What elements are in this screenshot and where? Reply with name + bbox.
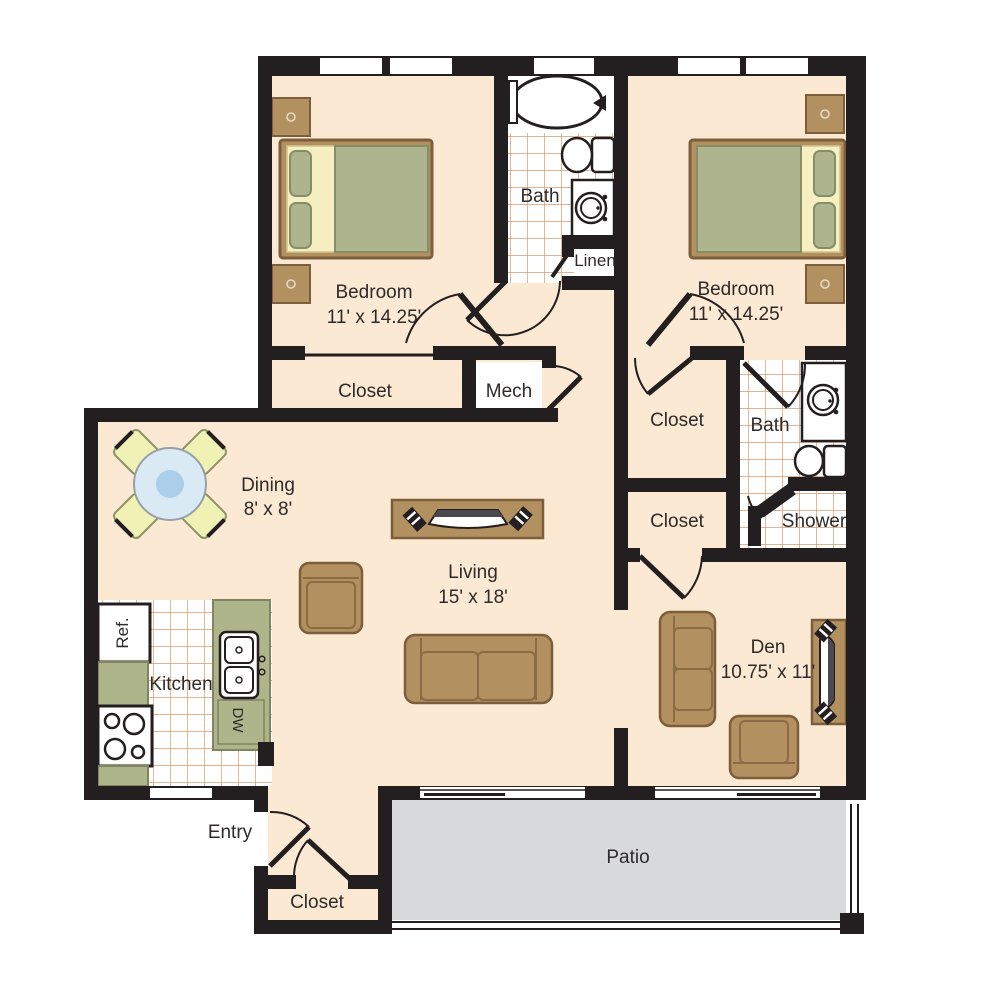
room-label-patio: Patio — [606, 847, 649, 868]
room-label-bedroom-left: Bedroom — [335, 282, 412, 303]
loveseat-icon — [660, 612, 715, 726]
room-dims-den: 10.75' x 11' — [721, 662, 816, 683]
room-label-bath-top: Bath — [520, 186, 559, 207]
room-label-shower: Shower — [782, 511, 847, 532]
stove-icon — [98, 706, 152, 766]
room-label-mech: Mech — [486, 381, 532, 402]
room-label-linen: Linen — [574, 251, 616, 270]
room-label-entry: Entry — [208, 822, 253, 843]
label-refrigerator: Ref. — [113, 617, 132, 648]
room-label-dining: Dining — [241, 475, 295, 496]
room-label-bath-right: Bath — [750, 415, 789, 436]
sink-vanity-icon — [572, 180, 614, 238]
room-label-den: Den — [751, 637, 786, 658]
armchair-icon — [300, 563, 362, 633]
kitchen-counter — [98, 662, 148, 706]
bed-left-icon — [280, 140, 432, 258]
label-dishwasher: DW — [229, 708, 246, 734]
kitchen-sink-icon — [220, 632, 265, 698]
room-dims-dining: 8' x 8' — [244, 499, 292, 520]
sofa-icon — [405, 635, 552, 703]
nightstand-icon — [806, 95, 844, 133]
room-label-closet-entry: Closet — [290, 892, 345, 913]
room-label-kitchen: Kitchen — [149, 674, 212, 695]
nightstand-icon — [806, 265, 844, 303]
nightstand-icon — [272, 265, 310, 303]
room-dims-living: 15' x 18' — [438, 587, 508, 608]
sliding-door — [420, 787, 585, 798]
kitchen-counter — [98, 766, 148, 786]
toilet-icon — [562, 138, 614, 172]
room-dims-bedroom-left: 11' x 14.25' — [327, 307, 422, 328]
room-label-closet-bedroom: Closet — [338, 381, 393, 402]
room-label-closet-lower: Closet — [650, 511, 705, 532]
floor-plan-canvas: Bedroom 11' x 14.25' Bedroom 11' x 14.25… — [0, 0, 1000, 1000]
room-label-closet-upper: Closet — [650, 410, 705, 431]
room-label-bedroom-right: Bedroom — [697, 279, 774, 300]
nightstand-icon — [272, 98, 310, 136]
room-dims-bedroom-right: 11' x 14.25' — [689, 304, 784, 325]
room-label-living: Living — [448, 562, 498, 583]
floor-plan: Bedroom 11' x 14.25' Bedroom 11' x 14.25… — [0, 0, 1000, 1000]
patio-railing-post — [840, 913, 864, 934]
tv-console-icon — [392, 500, 543, 538]
sliding-door — [655, 787, 820, 798]
bathtub-icon — [509, 76, 606, 128]
sink-vanity-icon — [802, 363, 846, 441]
bed-right-icon — [690, 140, 845, 258]
tv-console-icon — [812, 619, 846, 725]
kitchen-wall-stub — [258, 742, 274, 766]
armchair-icon — [730, 716, 798, 778]
